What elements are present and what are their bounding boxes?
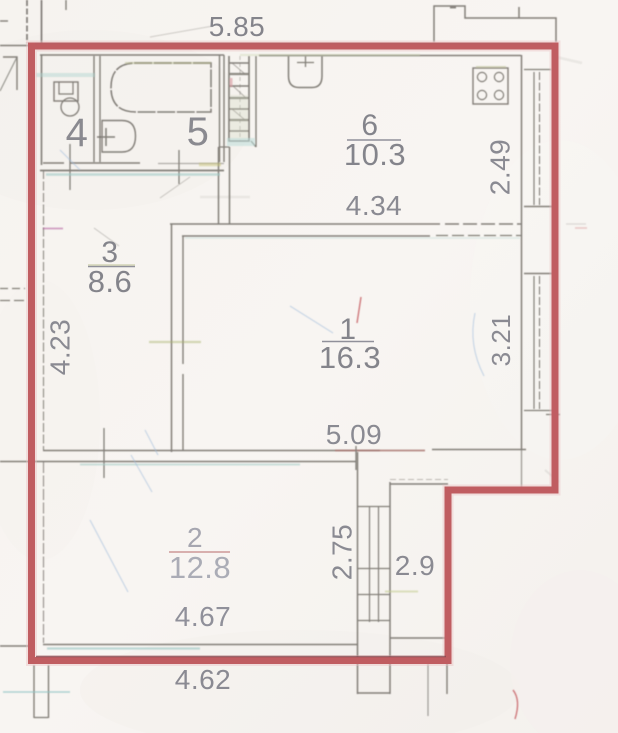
svg-text:4.23: 4.23 [44,319,75,376]
svg-text:4.62: 4.62 [175,664,232,695]
svg-text:5.09: 5.09 [326,419,383,450]
svg-text:2.49: 2.49 [484,139,515,196]
svg-text:4: 4 [66,111,89,155]
svg-text:3.21: 3.21 [486,314,516,367]
svg-text:5: 5 [187,110,210,154]
svg-text:5.85: 5.85 [209,11,266,42]
svg-text:4.67: 4.67 [175,601,232,632]
svg-text:12.8: 12.8 [169,550,231,585]
svg-text:8.6: 8.6 [88,264,133,299]
svg-text:2: 2 [187,522,203,553]
svg-text:2.75: 2.75 [326,524,357,581]
svg-text:16.3: 16.3 [319,340,381,375]
svg-text:4.34: 4.34 [346,190,403,221]
svg-text:2.9: 2.9 [395,550,435,581]
svg-text:10.3: 10.3 [344,137,406,172]
